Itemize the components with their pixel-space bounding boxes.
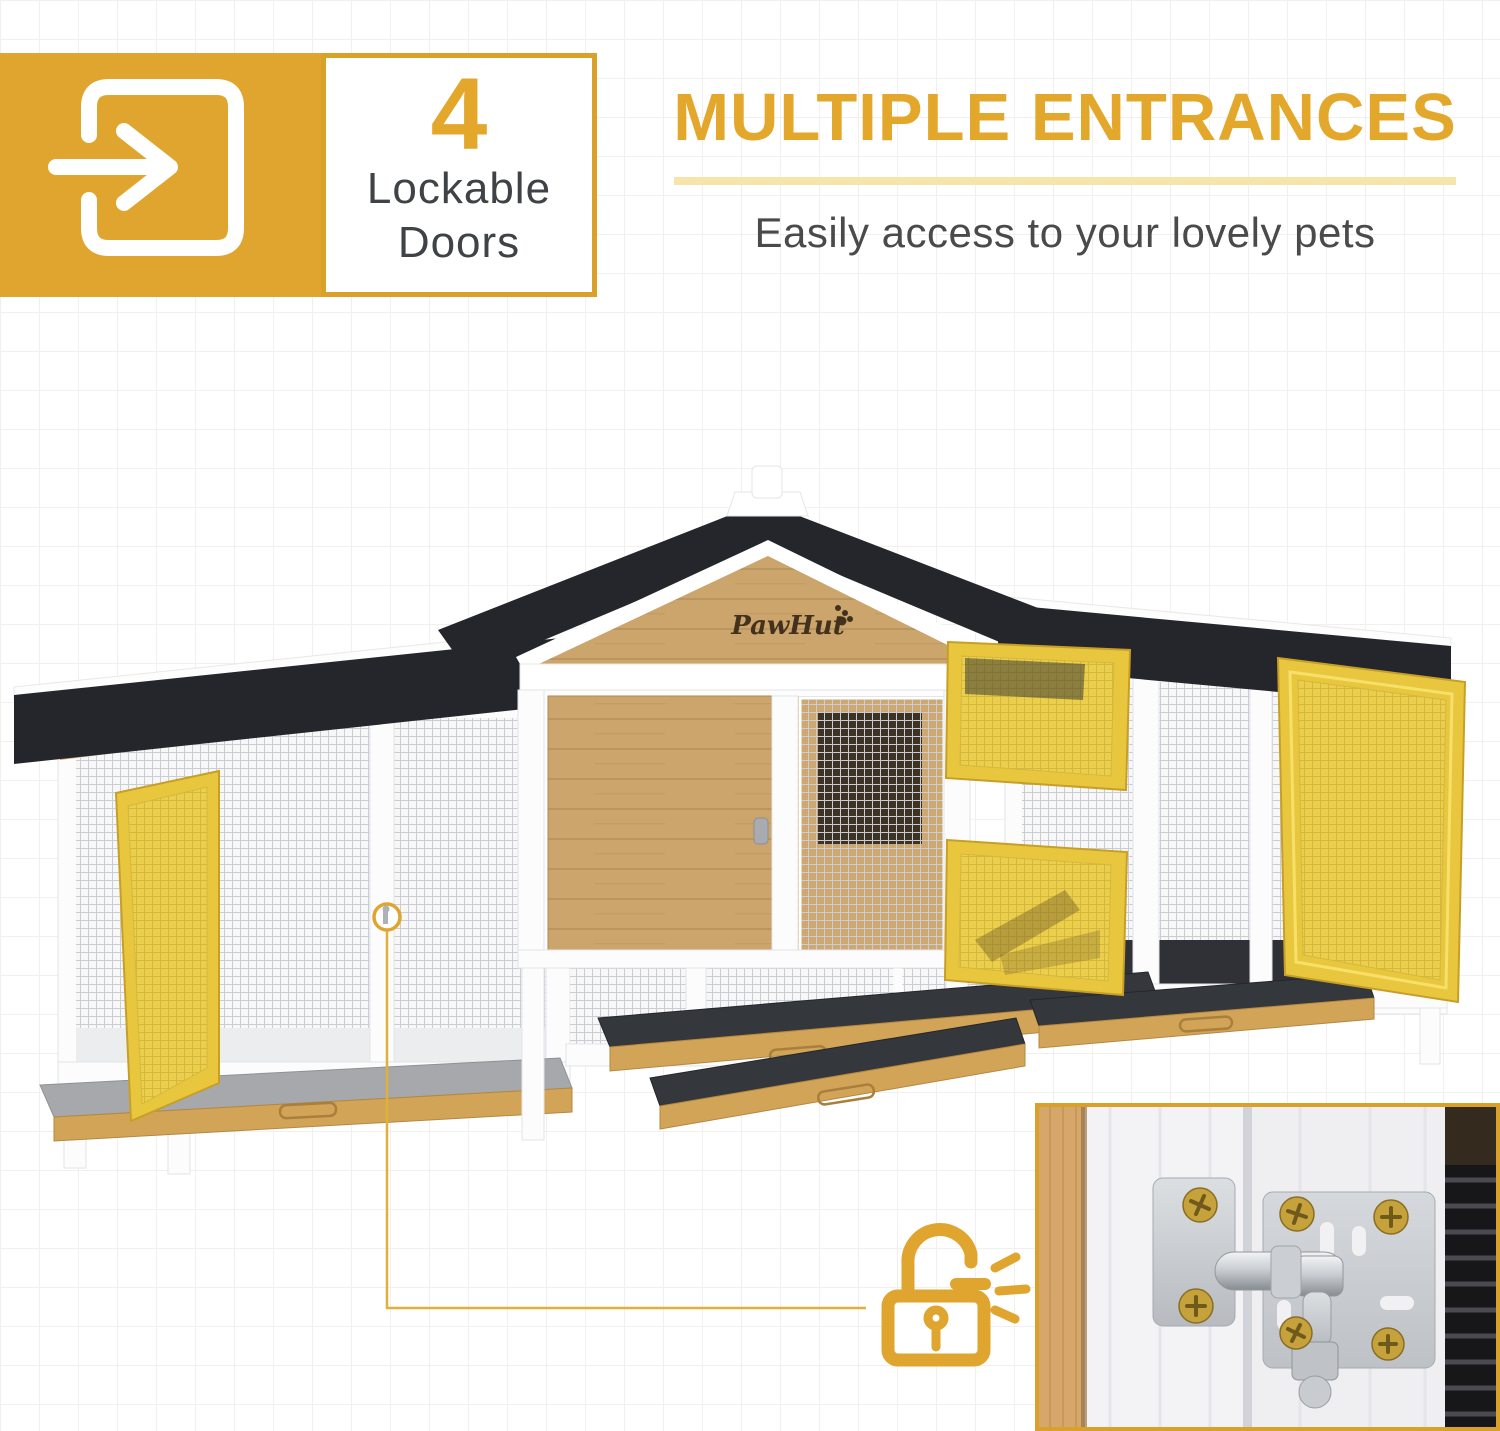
- page-title: MULTIPLE ENTRANCES: [625, 84, 1500, 151]
- left-yellow-door: [116, 771, 219, 1121]
- badge-icon-block: [0, 53, 321, 297]
- door-enter-icon: [0, 53, 321, 297]
- ridge-finial: [752, 466, 782, 498]
- page-subtitle: Easily access to your lovely pets: [625, 209, 1500, 257]
- door-latch: [754, 818, 768, 844]
- brand-text: PawHut: [730, 611, 845, 641]
- left-wing-post: [370, 712, 394, 1068]
- right-yellow-door: [1278, 658, 1465, 1002]
- badge-box: 4 Lockable Doors: [321, 53, 597, 297]
- leg: [1420, 1008, 1440, 1064]
- product-infographic: PawHut: [0, 0, 1500, 1431]
- headline-divider: [674, 177, 1456, 185]
- headline-block: MULTIPLE ENTRANCES Easily access to your…: [625, 84, 1500, 257]
- house-wood-door: [548, 696, 772, 960]
- badge-count: 4: [431, 68, 488, 162]
- badge-label-line1: Lockable: [367, 162, 551, 217]
- latch-inset-photo: [1035, 1103, 1500, 1431]
- padlock-unlocked-icon: [888, 1230, 1026, 1360]
- house-window: [798, 696, 946, 960]
- upper-yellow-door: [946, 642, 1130, 790]
- gable-band: [520, 664, 1016, 690]
- leg: [522, 968, 544, 1140]
- brand-logo: PawHut: [730, 605, 853, 641]
- badge-label-line2: Doors: [398, 216, 520, 271]
- lower-yellow-door: [945, 840, 1127, 995]
- left-wing: [14, 627, 589, 1174]
